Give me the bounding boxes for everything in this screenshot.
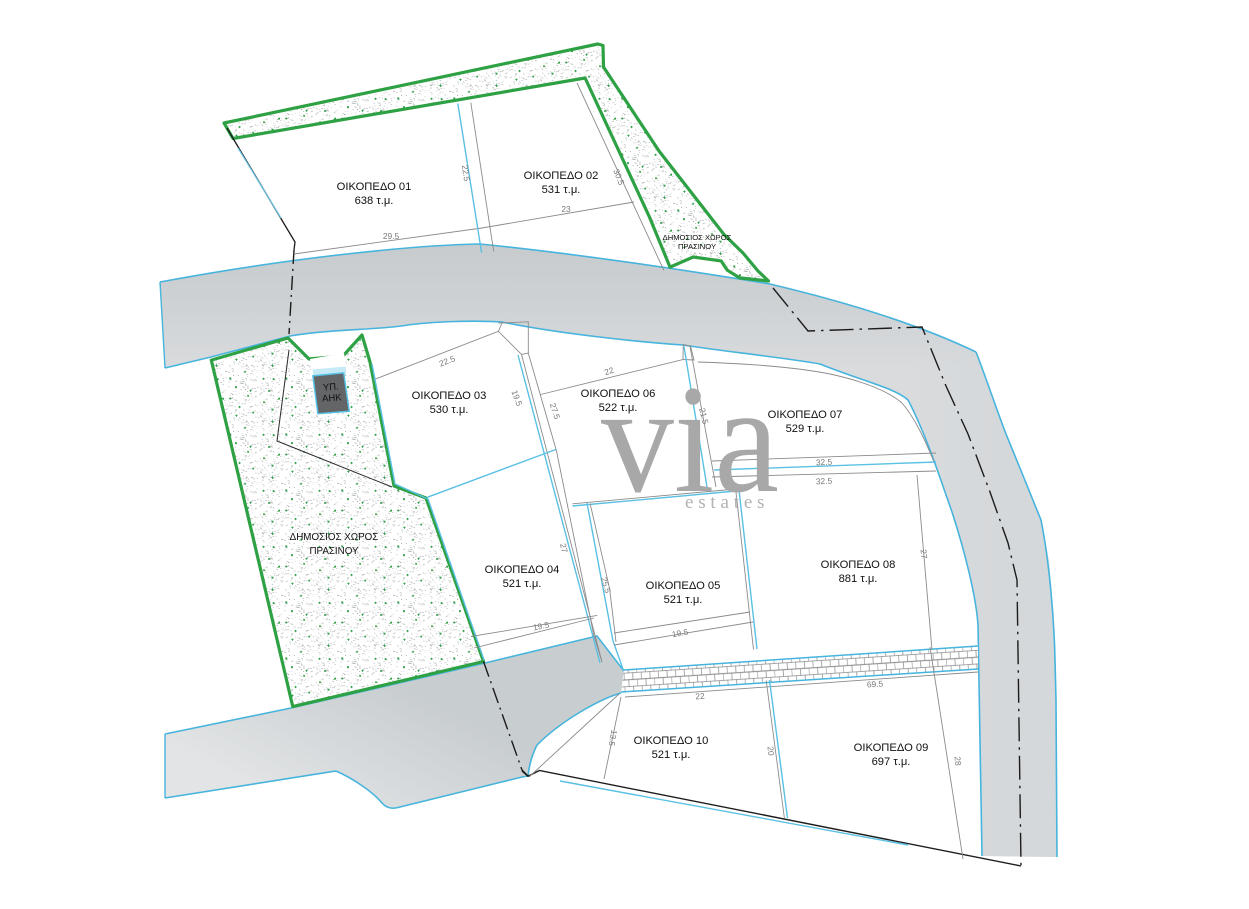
svg-text:ΟΙΚΟΠΕΔΟ 02: ΟΙΚΟΠΕΔΟ 02 — [524, 170, 599, 182]
svg-text:521 τ.μ.: 521 τ.μ. — [652, 749, 691, 761]
svg-text:ΔΗΜΟΣΙΟΣ ΧΩΡΟΣ: ΔΗΜΟΣΙΟΣ ΧΩΡΟΣ — [290, 532, 379, 543]
svg-text:estates: estates — [685, 492, 769, 513]
svg-text:28: 28 — [953, 756, 964, 767]
svg-text:ΟΙΚΟΠΕΔΟ 05: ΟΙΚΟΠΕΔΟ 05 — [646, 580, 721, 592]
svg-text:ΑΗΚ: ΑΗΚ — [322, 392, 343, 404]
svg-text:521 τ.μ.: 521 τ.μ. — [503, 578, 542, 590]
svg-text:32.5: 32.5 — [816, 476, 833, 487]
svg-text:ΟΙΚΟΠΕΔΟ 09: ΟΙΚΟΠΕΔΟ 09 — [854, 742, 929, 754]
svg-text:69.5: 69.5 — [867, 678, 884, 689]
svg-text:ΠΡΑΣΙΝΟΥ: ΠΡΑΣΙΝΟΥ — [678, 242, 716, 251]
svg-text:22: 22 — [695, 691, 705, 702]
svg-text:ΟΙΚΟΠΕΔΟ 10: ΟΙΚΟΠΕΔΟ 10 — [634, 735, 709, 747]
svg-text:638 τ.μ.: 638 τ.μ. — [355, 195, 394, 207]
svg-text:530 τ.μ.: 530 τ.μ. — [430, 404, 469, 416]
svg-text:23: 23 — [561, 204, 571, 214]
svg-text:29.5: 29.5 — [383, 231, 400, 241]
svg-text:27: 27 — [918, 549, 929, 560]
svg-text:ΟΙΚΟΠΕΔΟ 06: ΟΙΚΟΠΕΔΟ 06 — [581, 388, 656, 400]
svg-text:ΟΙΚΟΠΕΔΟ 01: ΟΙΚΟΠΕΔΟ 01 — [337, 181, 412, 193]
svg-text:ΠΡΑΣΙΝΟΥ: ΠΡΑΣΙΝΟΥ — [309, 546, 359, 557]
svg-text:881 τ.μ.: 881 τ.μ. — [839, 573, 878, 585]
svg-text:32.5: 32.5 — [816, 457, 833, 468]
svg-text:ΟΙΚΟΠΕΔΟ 07: ΟΙΚΟΠΕΔΟ 07 — [768, 409, 843, 421]
svg-text:20: 20 — [766, 746, 777, 757]
svg-text:529 τ.μ.: 529 τ.μ. — [786, 423, 825, 435]
svg-text:ΟΙΚΟΠΕΔΟ 04: ΟΙΚΟΠΕΔΟ 04 — [485, 564, 560, 576]
svg-text:531 τ.μ.: 531 τ.μ. — [542, 184, 581, 196]
svg-text:521 τ.μ.: 521 τ.μ. — [664, 594, 703, 606]
svg-text:ΟΙΚΟΠΕΔΟ 08: ΟΙΚΟΠΕΔΟ 08 — [821, 559, 896, 571]
svg-text:697 τ.μ.: 697 τ.μ. — [872, 756, 911, 768]
svg-text:ΟΙΚΟΠΕΔΟ 03: ΟΙΚΟΠΕΔΟ 03 — [412, 390, 487, 402]
svg-text:ΔΗΜΟΣΙΟΣ ΧΩΡΟΣ: ΔΗΜΟΣΙΟΣ ΧΩΡΟΣ — [663, 233, 732, 242]
svg-text:522 τ.μ.: 522 τ.μ. — [599, 402, 638, 414]
